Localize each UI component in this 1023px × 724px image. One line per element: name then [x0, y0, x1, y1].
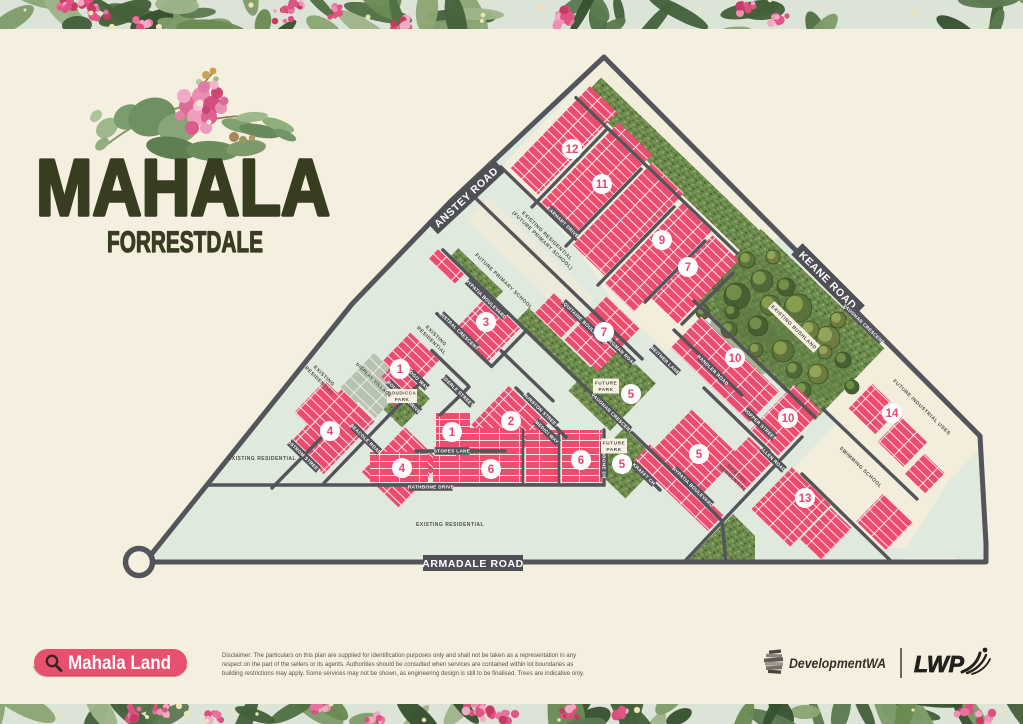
svg-text:STOPES LANE: STOPES LANE [434, 449, 470, 454]
svg-text:14: 14 [886, 408, 899, 420]
svg-text:FUTURE: FUTURE [595, 381, 618, 387]
svg-text:PARK: PARK [598, 387, 613, 393]
svg-text:1: 1 [397, 364, 404, 376]
svg-text:6: 6 [488, 464, 494, 476]
svg-text:Mahala Land: Mahala Land [68, 653, 171, 674]
svg-text:MAHALA: MAHALA [36, 143, 330, 232]
svg-text:PARK: PARK [395, 397, 410, 402]
svg-text:EXISTING RESIDENTIAL: EXISTING RESIDENTIAL [416, 522, 484, 528]
svg-text:EXISTING RESIDENTIAL: EXISTING RESIDENTIAL [228, 456, 296, 462]
svg-text:FUTURE: FUTURE [603, 441, 626, 447]
svg-text:PARK: PARK [606, 447, 621, 453]
svg-text:4: 4 [327, 426, 334, 438]
svg-text:building restrictions may appl: building restrictions may apply. Some se… [222, 671, 584, 677]
svg-text:5: 5 [628, 389, 635, 401]
svg-text:4: 4 [399, 463, 406, 475]
svg-text:13: 13 [799, 493, 812, 505]
svg-text:2: 2 [508, 416, 514, 428]
svg-text:LWP: LWP [914, 651, 965, 677]
svg-text:ARMADALE ROAD: ARMADALE ROAD [422, 558, 524, 570]
svg-text:12: 12 [566, 144, 579, 156]
svg-text:FORRESTDALE: FORRESTDALE [107, 226, 263, 259]
svg-text:11: 11 [596, 179, 609, 191]
svg-text:6: 6 [578, 455, 584, 467]
svg-text:1: 1 [449, 427, 456, 439]
svg-text:7: 7 [601, 327, 607, 339]
svg-text:5: 5 [619, 459, 626, 471]
svg-text:Disclaimer: The particulars on: Disclaimer: The particulars on this plan… [222, 653, 577, 659]
svg-text:3: 3 [483, 317, 489, 329]
svg-text:9: 9 [659, 235, 665, 247]
svg-text:DevelopmentWA: DevelopmentWA [789, 656, 886, 671]
svg-text:10: 10 [729, 353, 742, 365]
svg-text:7: 7 [685, 262, 691, 274]
svg-text:5: 5 [696, 449, 703, 461]
svg-text:respect on the part of the sel: respect on the part of the sellers or it… [222, 662, 573, 668]
svg-text:10: 10 [782, 413, 795, 425]
svg-text:RATHBONE DRIVE: RATHBONE DRIVE [408, 485, 454, 490]
